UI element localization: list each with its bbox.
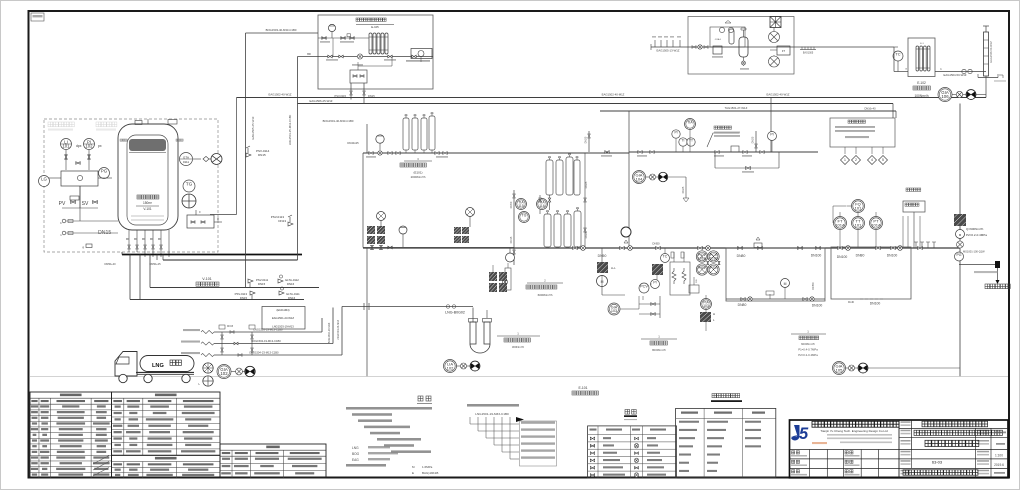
svg-text:PI: PI — [674, 130, 677, 134]
svg-text:px: px — [98, 144, 102, 148]
svg-text:EAG1506-50-W1Z: EAG1506-50-W1Z — [989, 41, 993, 63]
svg-text:0111: 0111 — [183, 160, 190, 164]
svg-text:DN25: DN25 — [584, 136, 588, 143]
svg-text:TG: TG — [186, 181, 193, 186]
svg-text:PI: PI — [653, 280, 656, 284]
svg-text:DN15: DN15 — [509, 236, 513, 243]
svg-text:EAG1506-25-W1Z: EAG1506-25-W1Z — [309, 99, 332, 103]
svg-text:6000Nm³/h: 6000Nm³/h — [801, 342, 815, 346]
svg-text:6000Nm³/h: 6000Nm³/h — [538, 293, 553, 297]
svg-text:EAG1505: EAG1505 — [803, 52, 814, 55]
svg-text:BOG1502-19-M13-C1B0: BOG1502-19-M13-C1B0 — [251, 339, 281, 343]
svg-text:LNG1501-25-M13-C1B0: LNG1501-25-M13-C1B0 — [288, 114, 292, 145]
svg-text:1: 1 — [844, 158, 846, 162]
svg-text:104: 104 — [636, 176, 643, 181]
svg-text:LLL: LLL — [611, 266, 616, 270]
svg-text:E-102: E-102 — [917, 81, 926, 85]
svg-text:EAG1502-40-W1Z: EAG1502-40-W1Z — [268, 93, 291, 97]
svg-text:DN100: DN100 — [837, 255, 848, 259]
svg-text:PI: PI — [770, 132, 773, 136]
svg-text:PCV: PCV — [640, 283, 648, 288]
svg-text:LNG1503-19-M13: LNG1503-19-M13 — [272, 325, 294, 329]
svg-text:EAG1502-40-W1Z: EAG1502-40-W1Z — [766, 93, 789, 97]
svg-text:DN16: DN16 — [287, 282, 295, 286]
svg-text:BOG1503-40-M33-C1B0: BOG1503-40-M33-C1B0 — [266, 28, 297, 32]
svg-text:DN80: DN80 — [737, 254, 746, 258]
svg-text:105: 105 — [836, 367, 843, 372]
svg-text:DN100: DN100 — [811, 254, 822, 258]
svg-text:P2=0.2-0.4MPa: P2=0.2-0.4MPa — [966, 233, 987, 237]
svg-text:MS1001-100-Q1W: MS1001-100-Q1W — [963, 250, 985, 254]
svg-text:DN15: DN15 — [240, 296, 248, 300]
svg-text:150m³: 150m³ — [143, 201, 152, 205]
svg-text:DN15: DN15 — [98, 230, 111, 236]
svg-text:dpx: dpx — [76, 144, 82, 148]
svg-text:103: 103 — [611, 309, 617, 313]
svg-text:DN15: DN15 — [258, 282, 266, 286]
svg-text:GTA-0: GTA-0 — [715, 38, 722, 41]
svg-text:TT: TT — [689, 138, 693, 142]
svg-text:1.6MPa: 1.6MPa — [422, 465, 433, 469]
svg-text:TC: TC — [663, 254, 668, 258]
svg-text:DN15: DN15 — [258, 153, 266, 157]
svg-text:TIA: TIA — [687, 121, 693, 125]
svg-text:LNG1501-19-M33-C1B0: LNG1501-19-M33-C1B0 — [475, 412, 509, 416]
svg-text:106: 106 — [941, 94, 949, 99]
svg-text:DN50: DN50 — [652, 242, 660, 246]
svg-text:TC: TC — [895, 51, 900, 56]
svg-text:BAG)19K1B: BAG)19K1B — [422, 471, 438, 475]
svg-text:DN80: DN80 — [738, 303, 747, 307]
svg-text:BOG1502-19-M13: BOG1502-19-M13 — [328, 322, 331, 343]
svg-text:TAG1501-27-W1Z: TAG1501-27-W1Z — [725, 106, 748, 110]
svg-text:EAG1501-23-W1Z: EAG1501-23-W1Z — [272, 316, 294, 320]
svg-text:101: 101 — [855, 205, 862, 210]
svg-text:V-101: V-101 — [202, 277, 211, 281]
svg-text:PG: PG — [101, 168, 108, 173]
svg-text:102: 102 — [220, 371, 228, 376]
svg-text:PV: PV — [59, 201, 66, 207]
svg-text:BR: BR — [307, 52, 311, 56]
svg-text:4: 4 — [871, 158, 873, 162]
svg-text:EAG: EAG — [352, 458, 359, 462]
svg-text:FT: FT — [782, 49, 786, 53]
svg-text:EAG1502-40-M1Z: EAG1502-40-M1Z — [602, 93, 625, 97]
svg-text:DN50+25: DN50+25 — [149, 262, 161, 266]
svg-text:1:100: 1:100 — [995, 454, 1003, 458]
svg-text:V-101: V-101 — [143, 207, 152, 211]
svg-text:DN100: DN100 — [812, 304, 823, 308]
svg-text:BOG: BOG — [352, 452, 360, 456]
svg-text:DxD: DxD — [848, 300, 855, 304]
svg-text:5: 5 — [882, 158, 884, 162]
svg-text:115: 115 — [518, 204, 524, 208]
svg-text:DN25: DN25 — [751, 136, 755, 143]
svg-text:2019.6: 2019.6 — [994, 463, 1004, 467]
svg-text:101A: 101A — [871, 222, 881, 227]
svg-text:(E101): (E101) — [413, 171, 422, 175]
svg-text:TI: TI — [682, 138, 685, 142]
svg-text:102: 102 — [447, 365, 454, 370]
svg-text:100Nm³/h: 100Nm³/h — [915, 94, 929, 98]
svg-text:BOG1501-40-M33-C1B0: BOG1501-40-M33-C1B0 — [323, 119, 354, 123]
svg-text:101A: 101A — [835, 222, 845, 227]
svg-text:300Nm³/h: 300Nm³/h — [512, 345, 525, 349]
svg-text:DN100: DN100 — [870, 302, 881, 306]
svg-text:EAG1505-25-W1Z: EAG1505-25-W1Z — [251, 116, 255, 139]
svg-text:H: H — [713, 312, 715, 316]
svg-text:EAG1504-50-W1Z: EAG1504-50-W1Z — [943, 73, 966, 77]
svg-text:LNG1504-23-M13-C1B0: LNG1504-23-M13-C1B0 — [249, 351, 279, 355]
svg-text:2000Nm³/h: 2000Nm³/h — [411, 175, 426, 179]
svg-text:103: 103 — [703, 304, 709, 308]
svg-text:TG: TG — [522, 214, 527, 218]
svg-text:DN50: DN50 — [509, 201, 513, 208]
svg-text:101: 101 — [855, 222, 862, 227]
svg-text:E-101: E-101 — [578, 386, 587, 390]
svg-text:(E1011M4): (E1011M4) — [276, 308, 289, 312]
svg-text:DN50+40: DN50+40 — [104, 262, 116, 266]
svg-text:E-105: E-105 — [371, 25, 379, 29]
svg-text:LNG1504-23-M13: LNG1504-23-M13 — [337, 319, 340, 340]
svg-text:LG: LG — [41, 176, 47, 181]
svg-text:116: 116 — [539, 204, 545, 208]
svg-text:DN50: DN50 — [811, 282, 815, 290]
svg-text:63-03: 63-03 — [932, 460, 943, 465]
svg-text:Q=600Nm³/h: Q=600Nm³/h — [966, 227, 984, 231]
svg-text:P1=0.4-0.7MPa: P1=0.4-0.7MPa — [798, 348, 818, 352]
svg-text:DN: DN — [696, 279, 698, 283]
svg-text:DN25: DN25 — [681, 186, 685, 193]
svg-text:LNG-B0G02: LNG-B0G02 — [445, 311, 465, 315]
svg-text:EAG1505-13-W1Z: EAG1505-13-W1Z — [656, 49, 679, 53]
svg-text:DN80: DN80 — [856, 254, 865, 258]
svg-text:M: M — [784, 282, 787, 286]
svg-text:DN13: DN13 — [278, 219, 286, 223]
svg-text:DN15: DN15 — [227, 325, 234, 328]
svg-text:M: M — [217, 217, 219, 221]
svg-text:P2=0.2-0.4MPa: P2=0.2-0.4MPa — [798, 353, 818, 357]
svg-text:DN100: DN100 — [887, 254, 898, 258]
svg-text:5: 5 — [799, 425, 809, 443]
svg-text:SV: SV — [82, 201, 89, 207]
svg-text:LNG: LNG — [152, 363, 164, 369]
svg-text:DN40x25: DN40x25 — [347, 141, 359, 145]
svg-text:DN16: DN16 — [288, 296, 296, 300]
svg-text:LNG: LNG — [352, 446, 359, 450]
svg-text:DN16+40: DN16+40 — [864, 107, 876, 111]
svg-text:2: 2 — [855, 158, 857, 162]
svg-text:E: E — [412, 471, 414, 475]
svg-text:8000Nm³/h: 8000Nm³/h — [652, 348, 666, 352]
svg-text:DN25: DN25 — [584, 181, 588, 188]
svg-text:Tianjin Yu Cheng Tech. Enginee: Tianjin Yu Cheng Tech. Engineering Desig… — [820, 429, 888, 433]
svg-text:PG: PG — [956, 253, 961, 257]
